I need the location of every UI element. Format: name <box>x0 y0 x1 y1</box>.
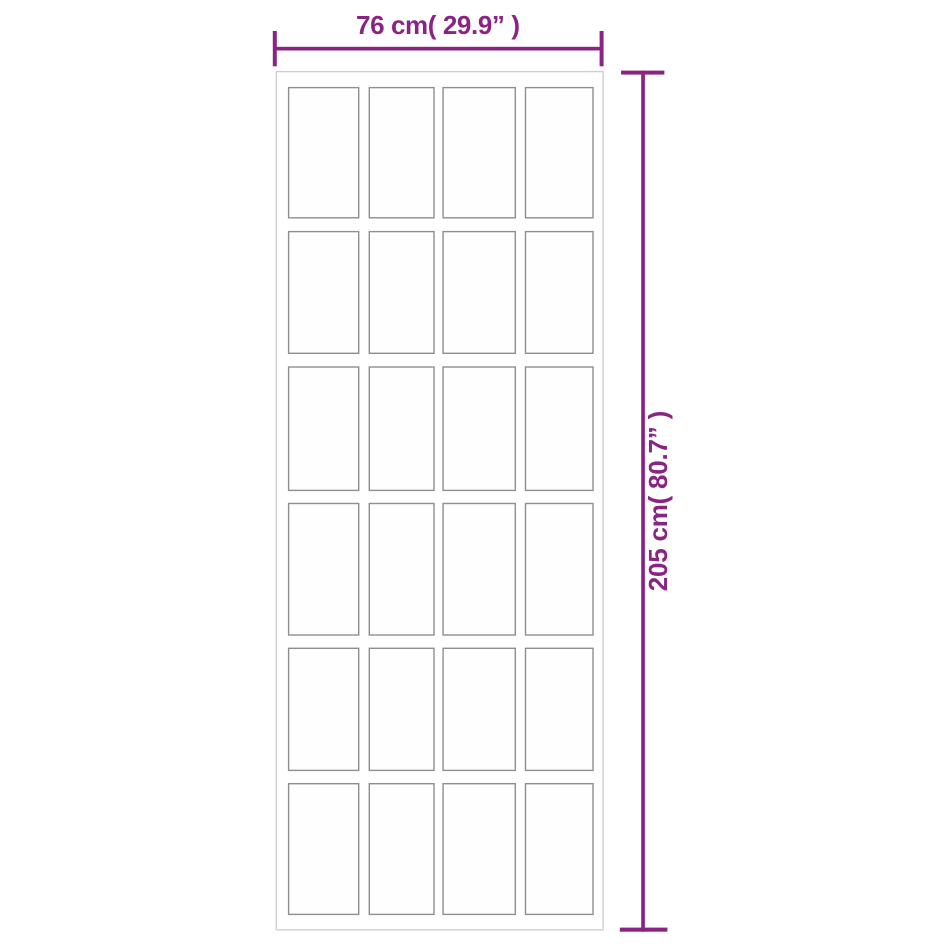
svg-text:205 cm( 80.7” ): 205 cm( 80.7” ) <box>643 411 673 592</box>
svg-text:76 cm( 29.9” ): 76 cm( 29.9” ) <box>356 10 520 40</box>
